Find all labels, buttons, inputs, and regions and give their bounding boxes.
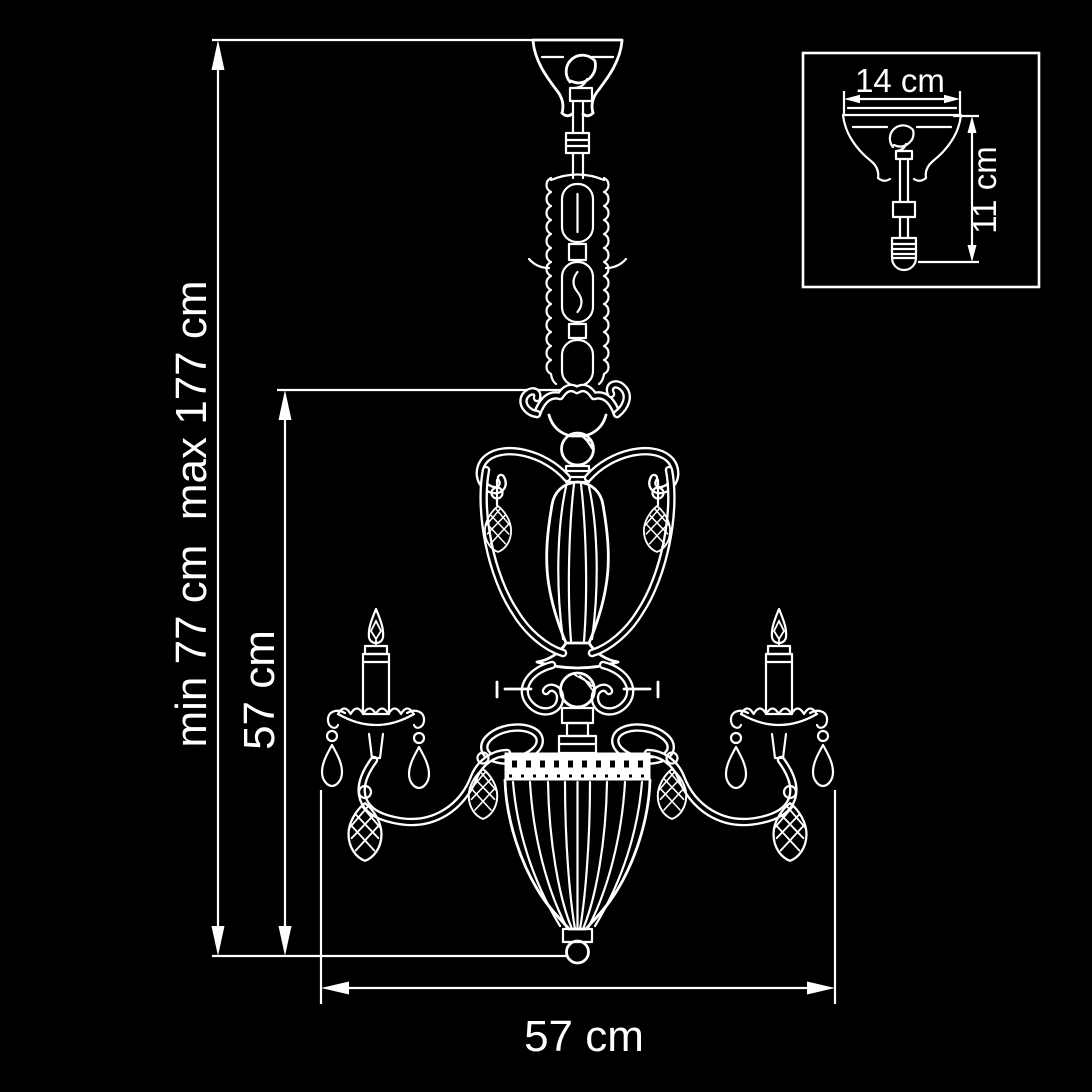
arrow-up-icon	[279, 390, 292, 420]
arrow-down-icon	[968, 245, 977, 262]
overall-height-label: min 77 cm max 177 cm	[167, 280, 216, 747]
ceiling-hook	[566, 55, 595, 83]
bowl-ribs	[513, 782, 642, 929]
central-vase	[537, 482, 618, 668]
central-bowl	[505, 753, 650, 963]
suspension-rod	[566, 101, 589, 178]
chain-with-sleeve	[529, 175, 626, 387]
inset-canopy	[843, 108, 961, 270]
arrow-down-icon	[212, 926, 225, 956]
arrow-left-icon	[321, 982, 349, 995]
arrow-right-icon	[807, 982, 835, 995]
arrow-right-icon	[944, 95, 960, 104]
finial-ball	[567, 941, 589, 963]
chain-links	[562, 184, 593, 386]
canopy-width-label: 14 cm	[855, 62, 945, 99]
ceiling-canopy	[533, 40, 622, 116]
diagram-canvas: min 77 cm max 177 cm 57 cm 57 cm	[0, 0, 1092, 1092]
drip-pan	[741, 709, 817, 715]
inset-detail: 14 cm 11 cm	[803, 53, 1039, 287]
chandelier-dimension-diagram: min 77 cm max 177 cm 57 cm 57 cm	[0, 0, 1092, 1092]
canopy-height-label: 11 cm	[966, 146, 1003, 233]
arrow-up-icon	[212, 40, 225, 70]
dimension-height-overall: min 77 cm max 177 cm	[167, 40, 566, 956]
chandelier-drawing	[322, 40, 833, 963]
drip-pan	[338, 709, 414, 715]
scroll-ornament	[497, 665, 658, 753]
body-height-label: 57 cm	[235, 630, 284, 750]
crown-ornament	[523, 384, 626, 436]
arrow-down-icon	[279, 926, 292, 956]
inset-hook	[890, 125, 914, 147]
arrow-up-icon	[968, 116, 977, 133]
inset-dimension-height: 11 cm	[918, 116, 1003, 262]
inset-dimension-width: 14 cm	[844, 62, 960, 114]
width-label: 57 cm	[524, 1012, 644, 1061]
